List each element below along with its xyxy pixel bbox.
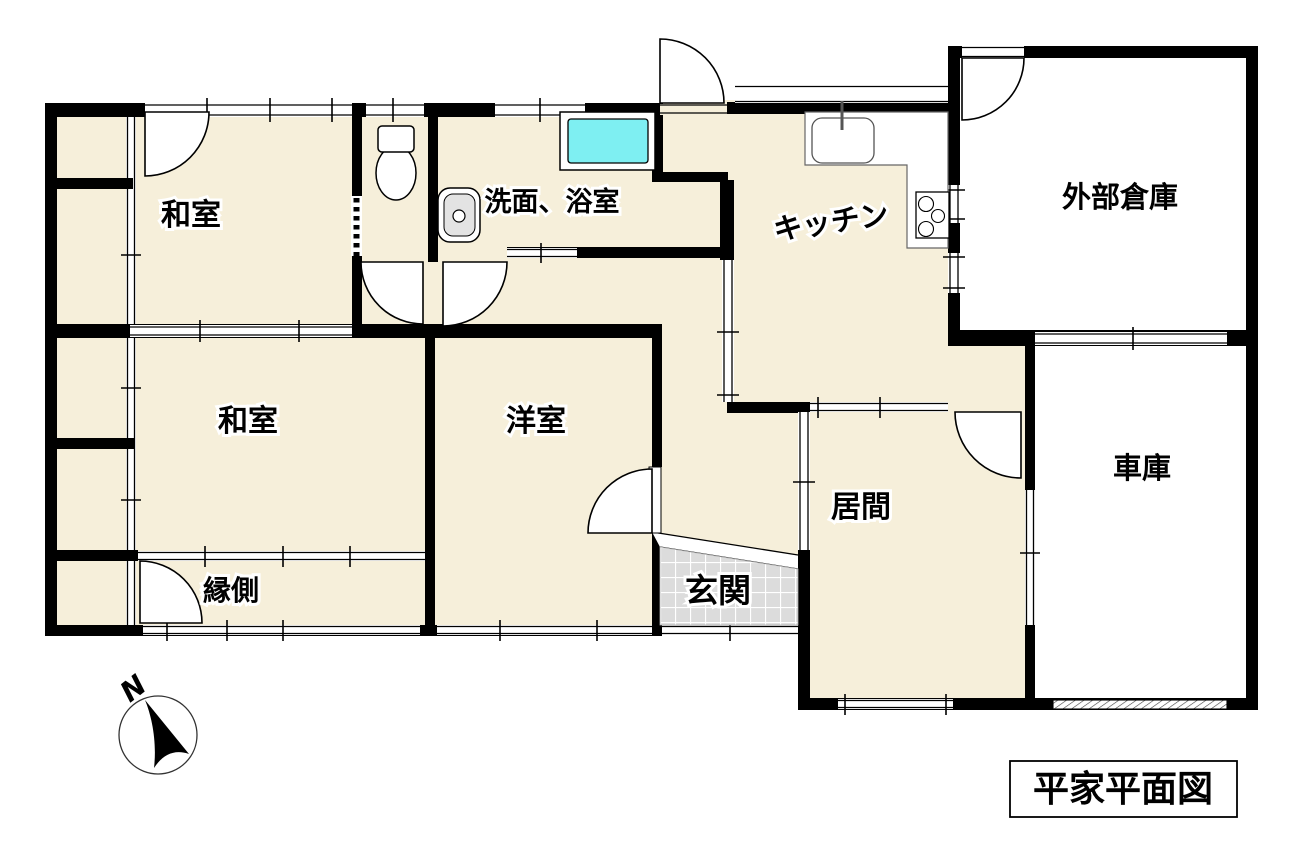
label-senmen: 洗面、浴室 [485, 186, 620, 218]
label-washitsu-nw: 和室 [161, 198, 221, 233]
label-ima: 居間 [831, 490, 891, 525]
label-engawa: 縁側 [203, 574, 259, 607]
label-storage: 外部倉庫 [1062, 180, 1178, 214]
window-kitchen-top [735, 85, 948, 103]
toilet-slider-dashes [351, 196, 362, 256]
washbasin-icon [438, 188, 480, 242]
compass-icon: N [114, 668, 197, 774]
door-arc-storage [962, 58, 1024, 120]
plan-title-box: 平家平面図 [1010, 761, 1237, 817]
floor-plan-canvas: N 和室 和室 洋室 縁側 玄関 居間 キッチン 洗面、浴室 外部倉庫 車庫 平… [0, 0, 1313, 856]
label-genkan: 玄関 [685, 571, 751, 610]
backdoor-threshold [660, 104, 727, 115]
bathtub-icon [560, 112, 655, 170]
north-arrow [145, 700, 189, 768]
garage-shutter [1053, 700, 1227, 709]
toilet-icon [376, 126, 416, 200]
door-arc-backdoor [660, 39, 724, 103]
floor-plan-svg: N 和室 和室 洋室 縁側 玄関 居間 キッチン 洗面、浴室 外部倉庫 車庫 平… [0, 0, 1313, 856]
storage-door-opening [962, 46, 1024, 58]
label-yoshitsu: 洋室 [506, 404, 566, 439]
label-washitsu-sw: 和室 [218, 404, 278, 439]
stove-icon [916, 192, 949, 238]
label-garage: 車庫 [1113, 451, 1171, 485]
plan-title: 平家平面図 [1033, 769, 1213, 810]
